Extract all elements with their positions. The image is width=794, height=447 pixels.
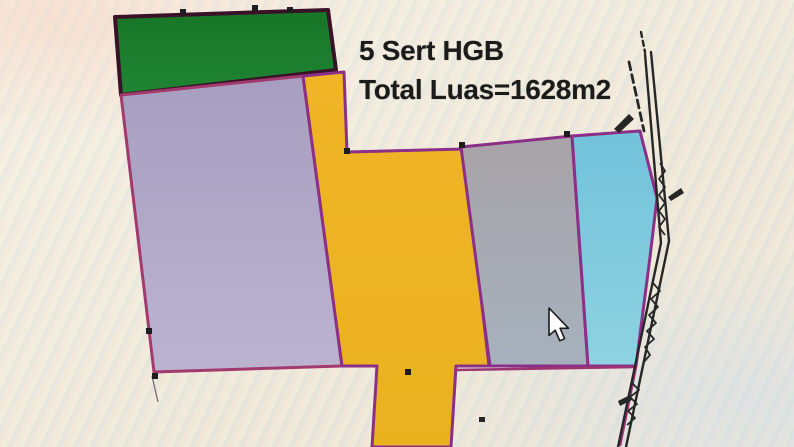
vertex-handle — [146, 328, 152, 334]
stray-dot — [479, 417, 485, 422]
annotation-line1: 5 Sert HGB — [359, 31, 611, 70]
scan-scratch — [152, 376, 158, 402]
vertex-handle — [180, 9, 186, 15]
vertex-handle — [152, 373, 158, 379]
parcel-yellow[interactable] — [303, 72, 489, 447]
parcel-outline-bottom-right[interactable] — [454, 367, 636, 446]
vertex-handle — [564, 131, 570, 137]
road-mark-mid — [618, 395, 632, 406]
vertex-handle — [405, 369, 411, 375]
parcel-blue[interactable] — [572, 131, 657, 366]
annotation-line2: Total Luas=1628m2 — [359, 70, 611, 109]
road-mark-flag-top — [614, 114, 634, 133]
map-annotation: 5 Sert HGB Total Luas=1628m2 — [359, 31, 611, 109]
road-mark-right — [668, 188, 684, 201]
screen-photo: 5 Sert HGB Total Luas=1628m2 — [0, 0, 794, 447]
vertex-handle — [252, 5, 258, 11]
road-line-4 — [641, 32, 645, 52]
vertex-handle — [459, 142, 465, 148]
vertex-handle — [287, 7, 293, 13]
vertex-handle — [344, 148, 350, 154]
